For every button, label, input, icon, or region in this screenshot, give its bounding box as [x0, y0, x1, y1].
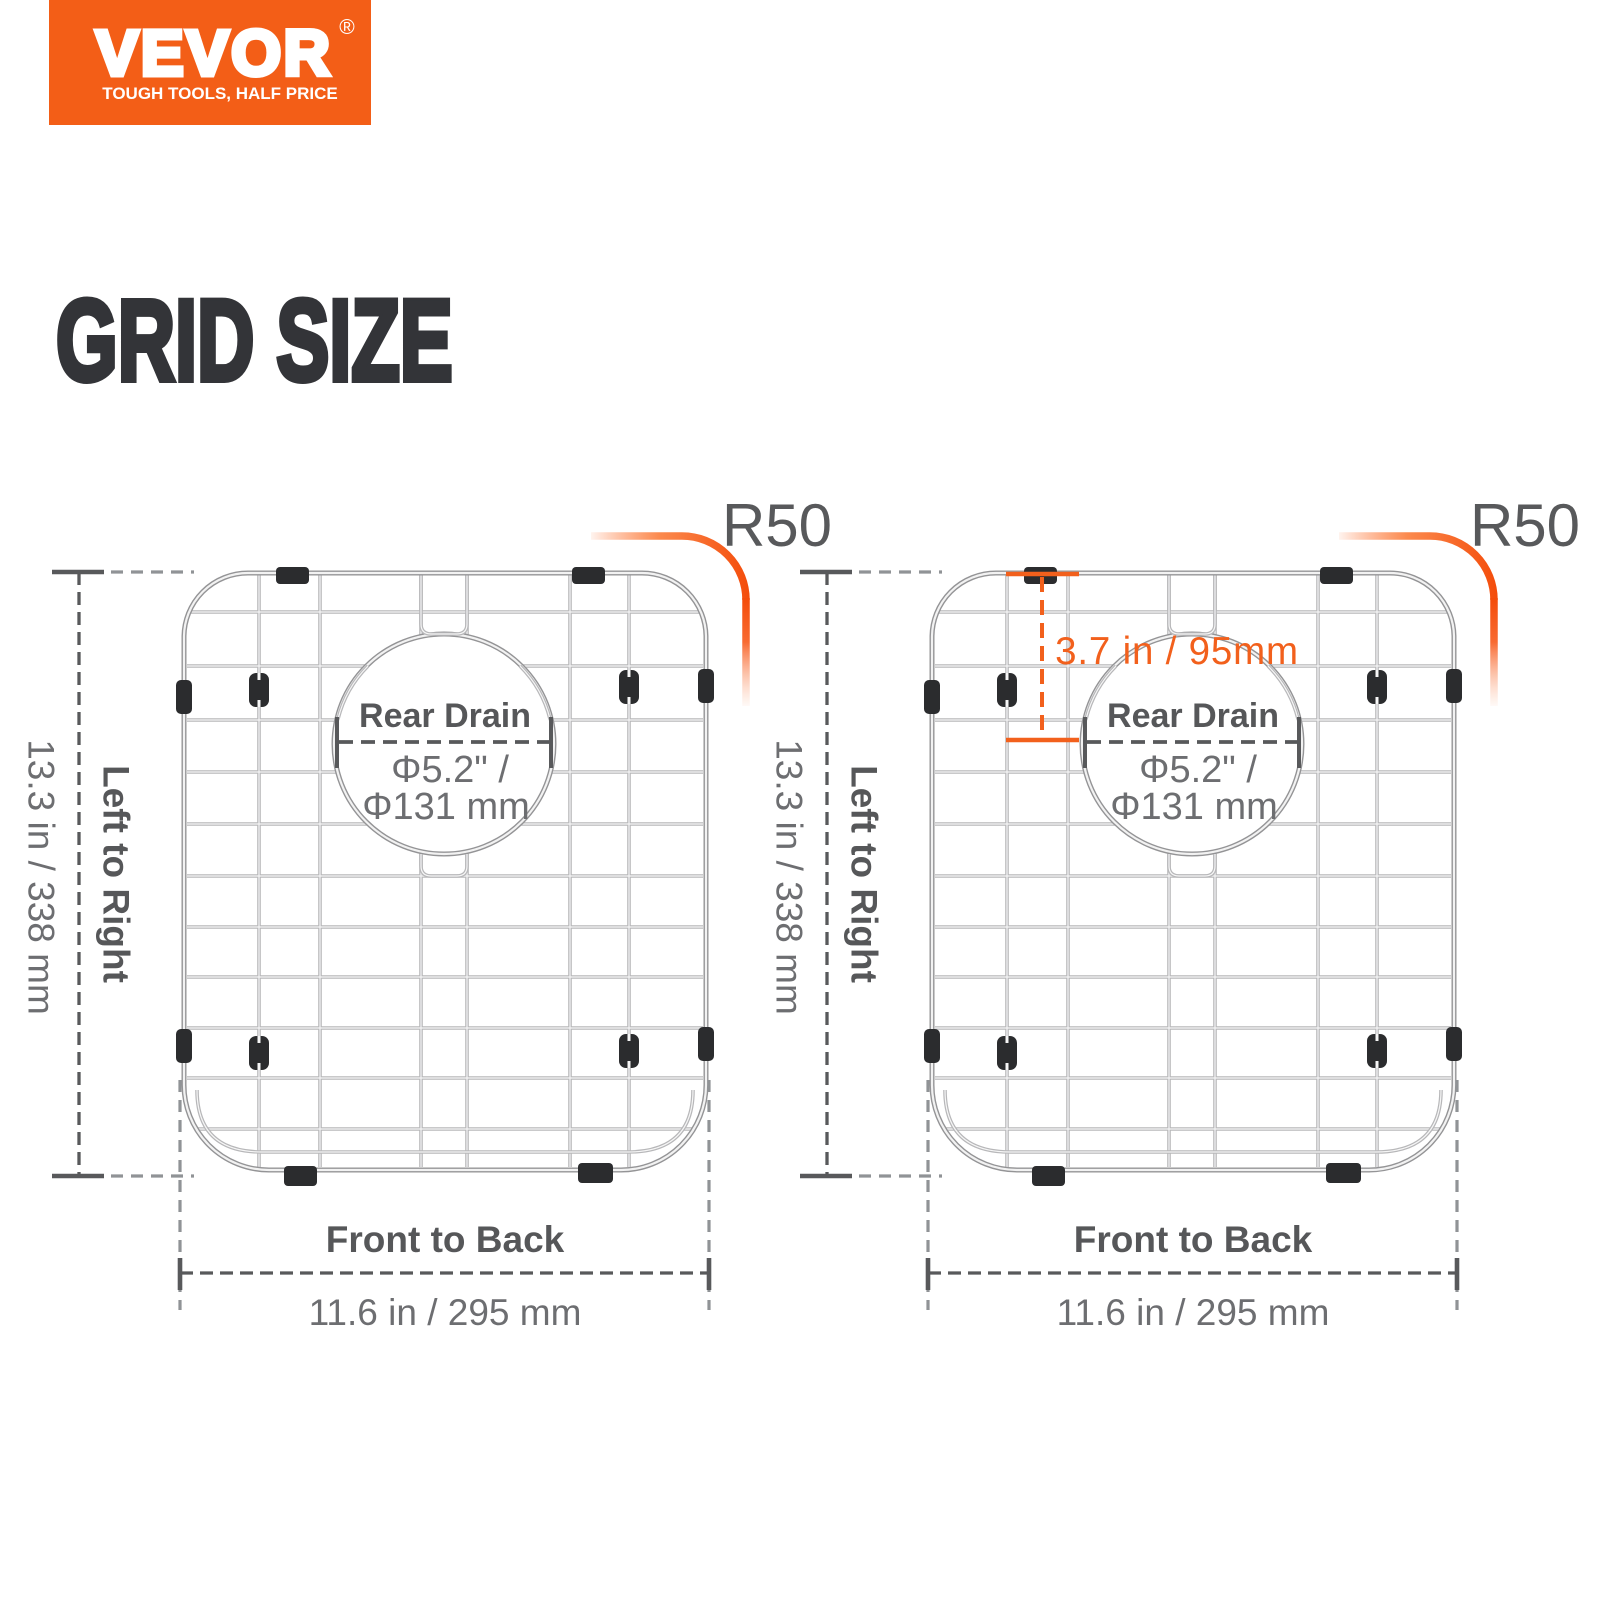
svg-text:3.7 in / 95mm: 3.7 in / 95mm — [1055, 630, 1299, 673]
svg-text:Φ131 mm: Φ131 mm — [362, 786, 530, 828]
svg-text:GRID SIZE: GRID SIZE — [56, 276, 453, 404]
svg-text:11.6 in / 295 mm: 11.6 in / 295 mm — [309, 1292, 582, 1333]
svg-text:®: ® — [339, 16, 355, 39]
svg-text:Φ5.2" /: Φ5.2" / — [391, 749, 509, 791]
svg-text:VEVOR: VEVOR — [96, 17, 333, 89]
svg-text:R50: R50 — [722, 492, 832, 559]
svg-text:13.3 in / 338 mm: 13.3 in / 338 mm — [21, 739, 62, 1015]
svg-text:TOUGH TOOLS, HALF PRICE: TOUGH TOOLS, HALF PRICE — [102, 84, 338, 103]
svg-text:Left to Right: Left to Right — [96, 765, 137, 983]
svg-text:Front to Back: Front to Back — [326, 1219, 565, 1260]
svg-text:Rear Drain: Rear Drain — [359, 697, 531, 735]
